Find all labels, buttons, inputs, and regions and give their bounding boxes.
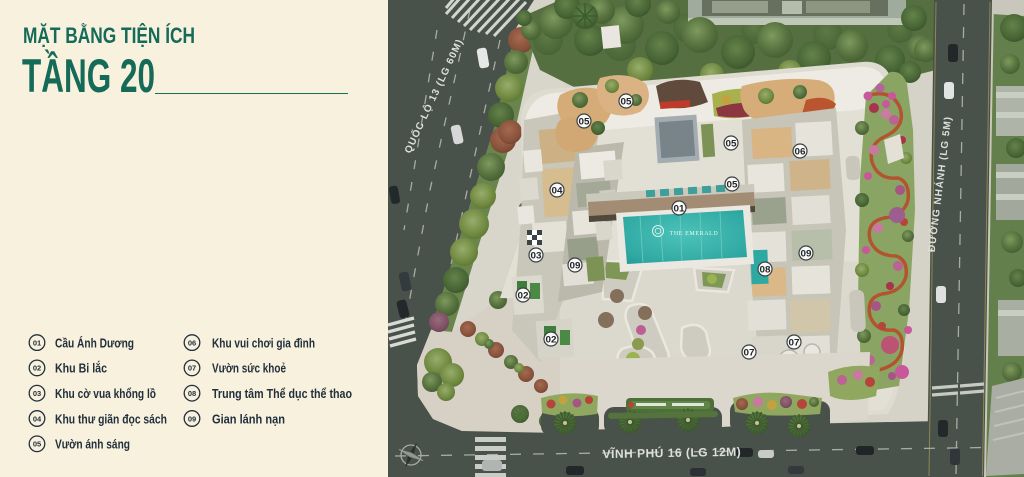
svg-text:01: 01	[674, 203, 686, 214]
svg-text:02: 02	[518, 290, 529, 301]
svg-text:Khu Bi lắc: Khu Bi lắc	[55, 361, 107, 376]
svg-text:Cầu Ánh Dương: Cầu Ánh Dương	[55, 335, 134, 350]
svg-text:05: 05	[33, 440, 41, 449]
svg-text:MẶT BẰNG TIỆN ÍCH: MẶT BẰNG TIỆN ÍCH	[23, 23, 195, 48]
svg-text:04: 04	[552, 185, 564, 196]
svg-text:VĨNH PHÚ 16 (LG 12M): VĨNH PHÚ 16 (LG 12M)	[602, 444, 741, 461]
svg-text:09: 09	[801, 248, 812, 259]
svg-text:08: 08	[760, 264, 771, 275]
svg-text:Trung tâm Thể dục thể thao: Trung tâm Thể dục thể thao	[212, 386, 352, 401]
svg-text:07: 07	[188, 364, 196, 373]
svg-text:Gian lánh nạn: Gian lánh nạn	[212, 411, 285, 426]
svg-text:09: 09	[188, 414, 196, 423]
svg-text:07: 07	[789, 337, 800, 348]
svg-text:Khu cờ vua khổng lồ: Khu cờ vua khổng lồ	[55, 386, 156, 401]
svg-text:05: 05	[579, 116, 591, 127]
svg-text:TẦNG 20: TẦNG 20	[22, 49, 155, 102]
svg-text:09: 09	[570, 260, 581, 271]
svg-text:03: 03	[33, 389, 41, 398]
svg-text:05: 05	[621, 96, 633, 107]
svg-text:06: 06	[795, 146, 806, 157]
svg-text:02: 02	[546, 334, 557, 345]
svg-text:03: 03	[531, 250, 542, 261]
svg-text:Vườn sức khoẻ: Vườn sức khoẻ	[212, 361, 286, 376]
svg-text:05: 05	[726, 138, 738, 149]
svg-text:Khu vui chơi gia đình: Khu vui chơi gia đình	[212, 335, 315, 350]
svg-text:THE EMERALD: THE EMERALD	[670, 231, 719, 237]
svg-text:05: 05	[727, 179, 739, 190]
svg-text:04: 04	[33, 414, 42, 423]
svg-text:Vườn ánh sáng: Vườn ánh sáng	[55, 437, 130, 452]
svg-text:07: 07	[744, 347, 755, 358]
svg-text:Khu thư giãn đọc sách: Khu thư giãn đọc sách	[55, 411, 167, 426]
svg-text:01: 01	[33, 338, 41, 347]
svg-text:08: 08	[188, 389, 196, 398]
svg-text:06: 06	[188, 338, 196, 347]
svg-text:02: 02	[33, 364, 41, 373]
